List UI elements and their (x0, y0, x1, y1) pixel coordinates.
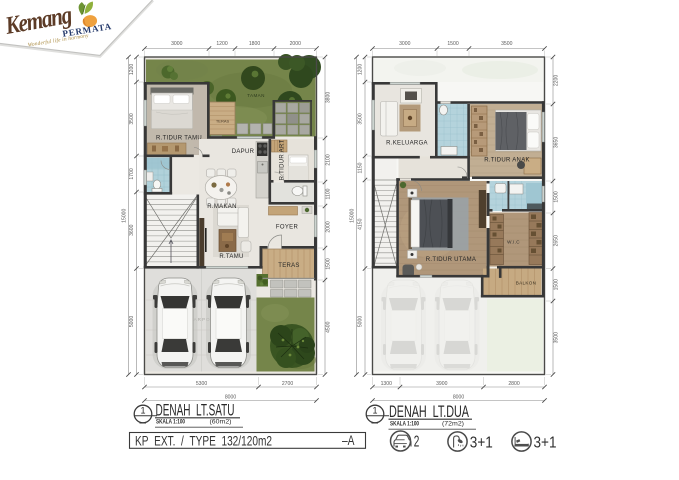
svg-text:8000: 8000 (453, 395, 464, 401)
svg-text:DENAH LT.SATU: DENAH LT.SATU (156, 401, 235, 419)
svg-text:1: 1 (140, 406, 145, 416)
svg-text:2650: 2650 (554, 235, 560, 246)
svg-text:1100: 1100 (326, 188, 332, 199)
svg-text:2700: 2700 (282, 381, 293, 387)
svg-text:3900: 3900 (436, 381, 447, 387)
svg-text:3500: 3500 (358, 113, 364, 124)
svg-text:2000: 2000 (326, 221, 332, 232)
svg-text:3500: 3500 (554, 332, 560, 343)
svg-text:15000: 15000 (122, 209, 128, 223)
svg-text:5000: 5000 (129, 316, 135, 327)
svg-text:BALKON: BALKON (516, 281, 536, 286)
svg-text:3650: 3650 (554, 137, 560, 148)
svg-text:TERAS: TERAS (278, 263, 300, 269)
svg-text:R.TIDUR ANAK: R.TIDUR ANAK (484, 158, 530, 164)
svg-text:1500: 1500 (554, 191, 560, 202)
svg-text:3500: 3500 (501, 41, 512, 47)
svg-text:2: 2 (414, 433, 420, 450)
svg-text:8000: 8000 (225, 395, 236, 401)
svg-text:SKALA 1:100: SKALA 1:100 (390, 421, 419, 428)
svg-text:1: 1 (372, 406, 377, 416)
svg-text:1200: 1200 (216, 41, 227, 47)
svg-text:DAPUR: DAPUR (232, 149, 255, 155)
svg-text:1700: 1700 (129, 168, 135, 179)
svg-text:R.TAMU: R.TAMU (219, 254, 243, 260)
svg-text:R.TIDUR UTAMA: R.TIDUR UTAMA (426, 257, 476, 263)
svg-text:4500: 4500 (326, 321, 332, 332)
svg-text:2800: 2800 (508, 381, 519, 387)
svg-text:15000: 15000 (350, 209, 356, 223)
svg-text:3+1: 3+1 (470, 435, 493, 452)
svg-text:2000: 2000 (290, 41, 301, 47)
svg-text:5300: 5300 (196, 381, 207, 387)
svg-text:3+1: 3+1 (534, 435, 557, 452)
svg-text:FOYER: FOYER (276, 225, 299, 231)
svg-text:2200: 2200 (554, 75, 560, 86)
svg-text:1800: 1800 (249, 41, 260, 47)
svg-text:W.I.C: W.I.C (507, 240, 520, 245)
svg-text:(60m2): (60m2) (210, 419, 232, 426)
svg-text:2100: 2100 (326, 154, 332, 165)
svg-text:1300: 1300 (381, 381, 392, 387)
svg-text:R.TIDUR TAMU: R.TIDUR TAMU (156, 136, 202, 142)
svg-text:1500: 1500 (447, 41, 458, 47)
svg-text:(72m2): (72m2) (442, 421, 464, 428)
svg-text:KP EXT. / TYPE 132/120m2: KP EXT. / TYPE 132/120m2 (135, 433, 272, 449)
svg-text:3000: 3000 (171, 41, 182, 47)
svg-text:3000: 3000 (399, 41, 410, 47)
svg-text:R.MAKAN: R.MAKAN (207, 204, 236, 210)
svg-text:SKALA 1:100: SKALA 1:100 (156, 419, 185, 426)
svg-text:4150: 4150 (358, 218, 364, 229)
svg-text:TERAS: TERAS (216, 119, 230, 124)
svg-text:1500: 1500 (554, 279, 560, 290)
svg-text:DENAH LT.DUA: DENAH LT.DUA (389, 403, 469, 421)
svg-text:5000: 5000 (358, 316, 364, 327)
svg-text:3800: 3800 (326, 92, 332, 103)
svg-text:–A: –A (342, 433, 355, 448)
svg-text:1150: 1150 (358, 162, 364, 173)
svg-text:TAMAN: TAMAN (247, 93, 265, 98)
svg-text:3500: 3500 (129, 113, 135, 124)
svg-text:3600: 3600 (129, 224, 135, 235)
svg-text:1200: 1200 (129, 64, 135, 75)
svg-text:1500: 1500 (326, 258, 332, 269)
svg-text:R.KELUARGA: R.KELUARGA (386, 141, 428, 147)
svg-text:1200: 1200 (358, 64, 364, 75)
